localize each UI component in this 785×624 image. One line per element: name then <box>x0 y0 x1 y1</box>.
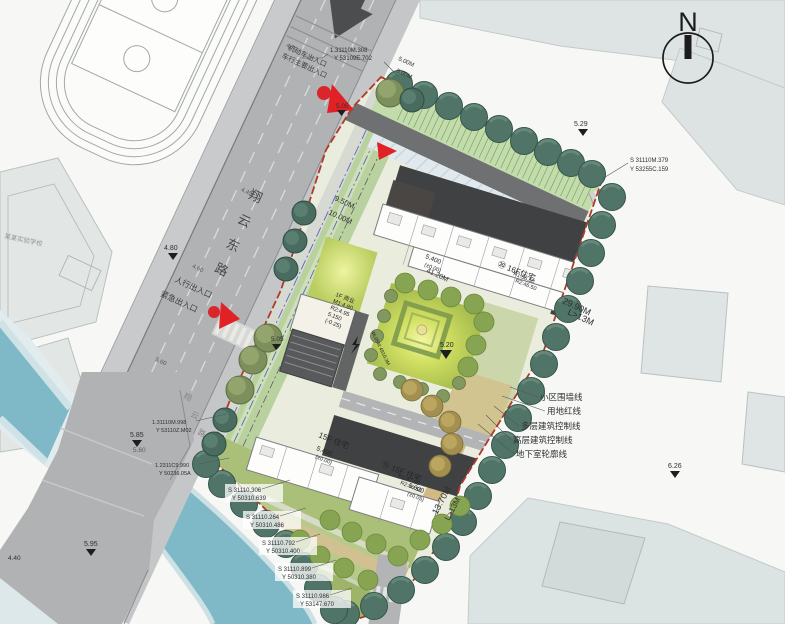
svg-text:S 31110.899: S 31110.899 <box>278 567 312 573</box>
svg-text:S 31110.306: S 31110.306 <box>228 488 262 494</box>
svg-text:Y 50310.400: Y 50310.400 <box>266 549 301 555</box>
svg-text:Y 53147.670: Y 53147.670 <box>300 602 335 608</box>
svg-text:1.31110M.998: 1.31110M.998 <box>152 420 186 426</box>
svg-text:5.95: 5.95 <box>84 541 98 548</box>
svg-text:Y 53109E.702: Y 53109E.702 <box>334 56 373 62</box>
svg-text:S 31110M.379: S 31110M.379 <box>630 158 669 164</box>
svg-text:S 31110.264: S 31110.264 <box>246 515 280 521</box>
svg-text:Y 53110Z.M02: Y 53110Z.M02 <box>156 428 192 434</box>
svg-text:1.31110M.308: 1.31110M.308 <box>330 48 368 54</box>
svg-text:S 31110.792: S 31110.792 <box>262 541 296 547</box>
svg-text:5.20: 5.20 <box>440 342 454 349</box>
svg-text:N: N <box>678 7 698 37</box>
svg-text:4.80: 4.80 <box>164 245 178 252</box>
svg-text:5.60: 5.60 <box>133 447 146 454</box>
svg-text:5.85: 5.85 <box>130 432 144 439</box>
svg-text:S 31110.986: S 31110.986 <box>296 594 330 600</box>
svg-text:多层建筑控制线: 多层建筑控制线 <box>521 421 581 431</box>
svg-text:高层建筑控制线: 高层建筑控制线 <box>513 435 573 445</box>
svg-text:小区围墙线: 小区围墙线 <box>540 392 583 402</box>
svg-text:5.29: 5.29 <box>574 121 588 128</box>
svg-text:Y 53255C.159: Y 53255C.159 <box>630 167 669 173</box>
svg-text:用地红线: 用地红线 <box>547 406 582 416</box>
svg-text:Y 50310.639: Y 50310.639 <box>232 496 267 502</box>
svg-text:Y 50310.486: Y 50310.486 <box>250 523 285 529</box>
svg-text:5.05: 5.05 <box>271 336 284 343</box>
svg-text:6.26: 6.26 <box>668 463 682 470</box>
svg-text:Y 50310.380: Y 50310.380 <box>282 575 317 581</box>
svg-text:5.05: 5.05 <box>336 103 349 110</box>
svg-text:1.2311C9.990: 1.2311C9.990 <box>155 463 189 469</box>
svg-text:4.40: 4.40 <box>8 555 21 562</box>
svg-text:地下室轮廓线: 地下室轮廓线 <box>516 449 568 459</box>
svg-text:Y 50236.05A: Y 50236.05A <box>159 471 191 477</box>
